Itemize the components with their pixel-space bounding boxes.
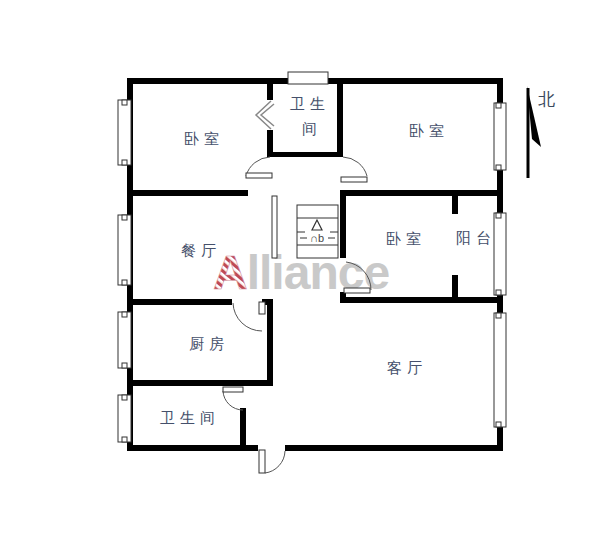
window-cap [122, 312, 127, 317]
stairwell-symbol: ∩b [297, 205, 338, 258]
wall-segment [267, 152, 343, 157]
window-balcony [494, 213, 506, 295]
door-arc [265, 451, 285, 473]
window-cap [122, 215, 127, 220]
compass-label: 北 [538, 90, 555, 109]
room-label-kitchen: 厨房 [189, 335, 229, 352]
floor-plan-drawing: Alliance [0, 0, 600, 533]
wall-segment [267, 130, 273, 155]
door-arc [223, 391, 243, 410]
wall-segment [337, 84, 343, 157]
door-arc [233, 303, 262, 331]
window-bedroom-top-right [494, 103, 506, 170]
door-arc [343, 157, 367, 176]
wall-bottom-left [127, 445, 258, 451]
wall-segment [240, 408, 246, 451]
north-arrow: 北 [527, 86, 555, 178]
door-leaf [259, 450, 265, 473]
window-cap [122, 395, 127, 400]
window-bedroom-top-left [118, 100, 131, 165]
wall-segment [340, 297, 497, 303]
wall-segment [267, 299, 273, 386]
window-cap [496, 213, 501, 218]
window-dining [118, 215, 131, 285]
door-leaf [259, 302, 265, 314]
window-cap [122, 100, 127, 105]
window-cap [496, 290, 501, 295]
window-cap [122, 437, 127, 442]
room-label-bathroom-top-line2: 间 [302, 120, 322, 137]
window-cap [496, 103, 501, 108]
door-leaf [344, 288, 370, 293]
folding-door-icon [256, 101, 274, 129]
window-cap [496, 165, 501, 170]
floor-plan: Alliance [0, 0, 600, 533]
window-cap [122, 280, 127, 285]
window-cap [496, 313, 501, 318]
wall-segment [267, 84, 273, 100]
corridor-thin-wall [272, 196, 277, 258]
room-label-balcony: 阳台 [456, 229, 496, 246]
wall-segment [133, 299, 232, 305]
room-label-living: 客厅 [387, 359, 427, 376]
room-label-bathroom-bottom: 卫生间 [160, 409, 220, 426]
room-label-bedroom-middle: 卧室 [386, 230, 426, 247]
room-label-bedroom-top-right: 卧室 [409, 122, 449, 139]
wall-segment [340, 196, 346, 258]
folding-door-line [261, 104, 274, 126]
room-label-dining: 餐厅 [181, 242, 221, 259]
door-leaf [341, 177, 367, 182]
folding-door-line [256, 101, 271, 129]
window-kitchen [118, 312, 131, 368]
door-leaf [246, 173, 272, 178]
window-living [494, 313, 506, 427]
window-bathroom-top [288, 72, 328, 84]
room-label-bathroom-top-line1: 卫生 [290, 95, 330, 112]
window-cap [122, 160, 127, 165]
wall-segment [340, 190, 497, 196]
wall-bottom-right [285, 445, 503, 451]
window-cap [496, 422, 501, 427]
wall-segment [133, 190, 248, 196]
window-cap [122, 363, 127, 368]
door-leaf [223, 387, 243, 392]
wall-segment [452, 196, 458, 214]
room-label-bedroom-top-left: 卧室 [184, 130, 224, 147]
window-bathroom-bottom [118, 395, 131, 442]
wall-segment [133, 380, 273, 386]
stairs-label: ∩b [310, 232, 324, 244]
